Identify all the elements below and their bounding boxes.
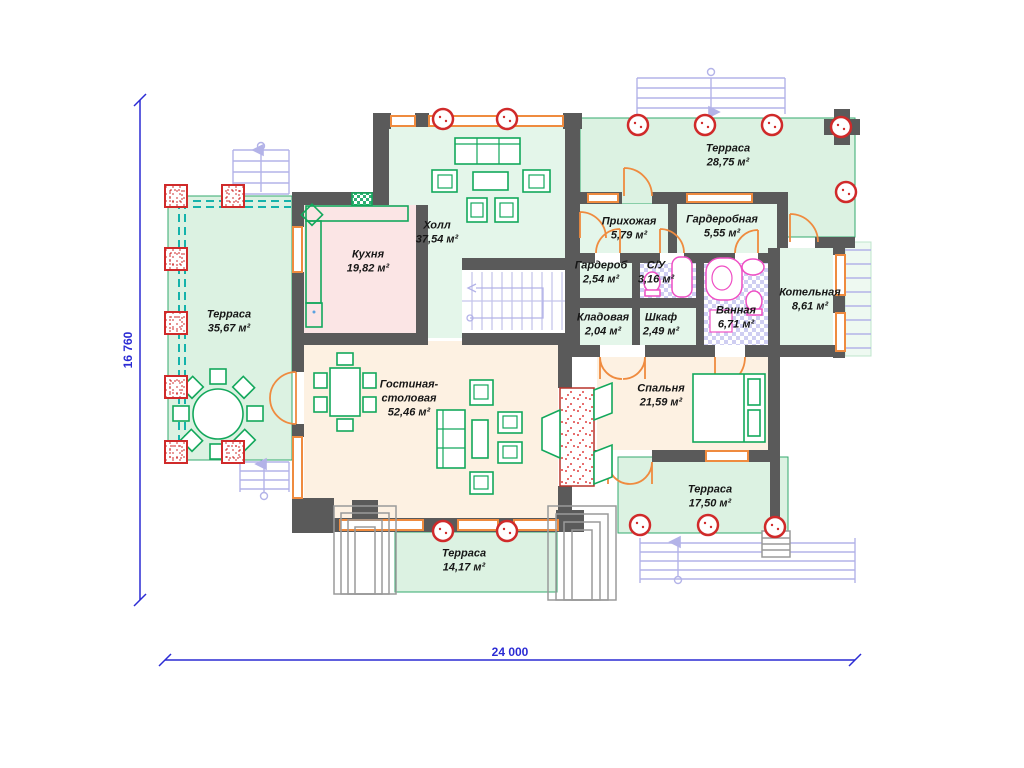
room-label-closet: Шкаф 2,49 м²: [643, 311, 679, 339]
floor-plan-canvas: Терраса 35,67 м² Кухня 19,82 м² Холл 37,…: [0, 0, 1024, 768]
room-label-terrace-se: Терраса 17,50 м²: [688, 483, 732, 511]
room-label-storage: Кладовая 2,04 м²: [577, 311, 629, 339]
room-label-bedroom: Спальня 21,59 м²: [637, 382, 684, 410]
room-label-wardrobe: Гардероб 2,54 м²: [575, 259, 628, 287]
room-label-wc: С/У 3,16 м²: [638, 259, 674, 287]
room-label-terrace-left: Терраса 35,67 м²: [207, 308, 251, 336]
room-label-boiler: Котельная 8,61 м²: [779, 286, 841, 314]
room-label-hall: Холл 37,54 м²: [416, 219, 458, 247]
room-label-terrace-top: Терраса 28,75 м²: [706, 142, 750, 170]
dimension-width-label: 24 000: [492, 646, 529, 658]
room-label-entry: Прихожая 5,79 м²: [602, 215, 657, 243]
dimension-height-label: 16 760: [122, 332, 134, 369]
room-label-living: Гостиная-столовая 52,46 м²: [370, 378, 448, 419]
room-label-terrace-south: Терраса 14,17 м²: [442, 547, 486, 575]
room-label-kitchen: Кухня 19,82 м²: [347, 248, 389, 276]
room-label-bath: Ванная 6,71 м²: [716, 304, 756, 332]
room-label-wardrobe-room: Гардеробная 5,55 м²: [685, 213, 759, 241]
